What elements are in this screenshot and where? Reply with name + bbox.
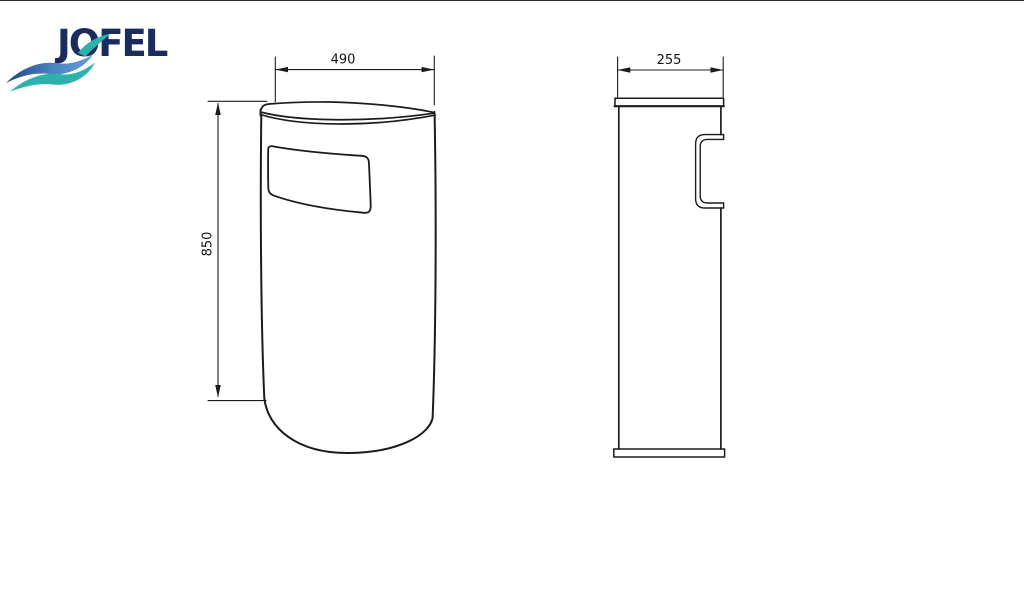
handle-inner-line — [700, 139, 723, 203]
height-dimension: 850 — [201, 101, 268, 400]
dimension-drawing: 490 850 — [0, 1, 1024, 597]
technical-drawing-page: JOFEL 490 — [0, 0, 1024, 597]
flap-opening-outline — [268, 146, 371, 213]
side-flap-handle — [696, 135, 724, 208]
arrowhead-left-icon — [275, 67, 288, 72]
bin-body-outline — [261, 115, 436, 454]
lid-rim-upper — [261, 112, 435, 120]
arrowhead-up-icon — [215, 103, 221, 116]
arrowhead-right-icon — [422, 67, 435, 72]
side-base-bar — [614, 449, 725, 457]
lid-top-edge — [261, 102, 434, 113]
width-dimension: 490 — [275, 53, 434, 106]
width-dimension-label: 490 — [331, 53, 356, 68]
depth-dimension: 255 — [618, 53, 724, 97]
height-dimension-label: 850 — [201, 232, 216, 257]
side-view: 255 — [614, 53, 725, 457]
depth-dimension-label: 255 — [657, 53, 682, 68]
arrowhead-right-icon — [711, 67, 724, 72]
arrowhead-left-icon — [618, 67, 631, 72]
arrowhead-down-icon — [215, 385, 221, 398]
front-view: 490 850 — [201, 53, 436, 454]
